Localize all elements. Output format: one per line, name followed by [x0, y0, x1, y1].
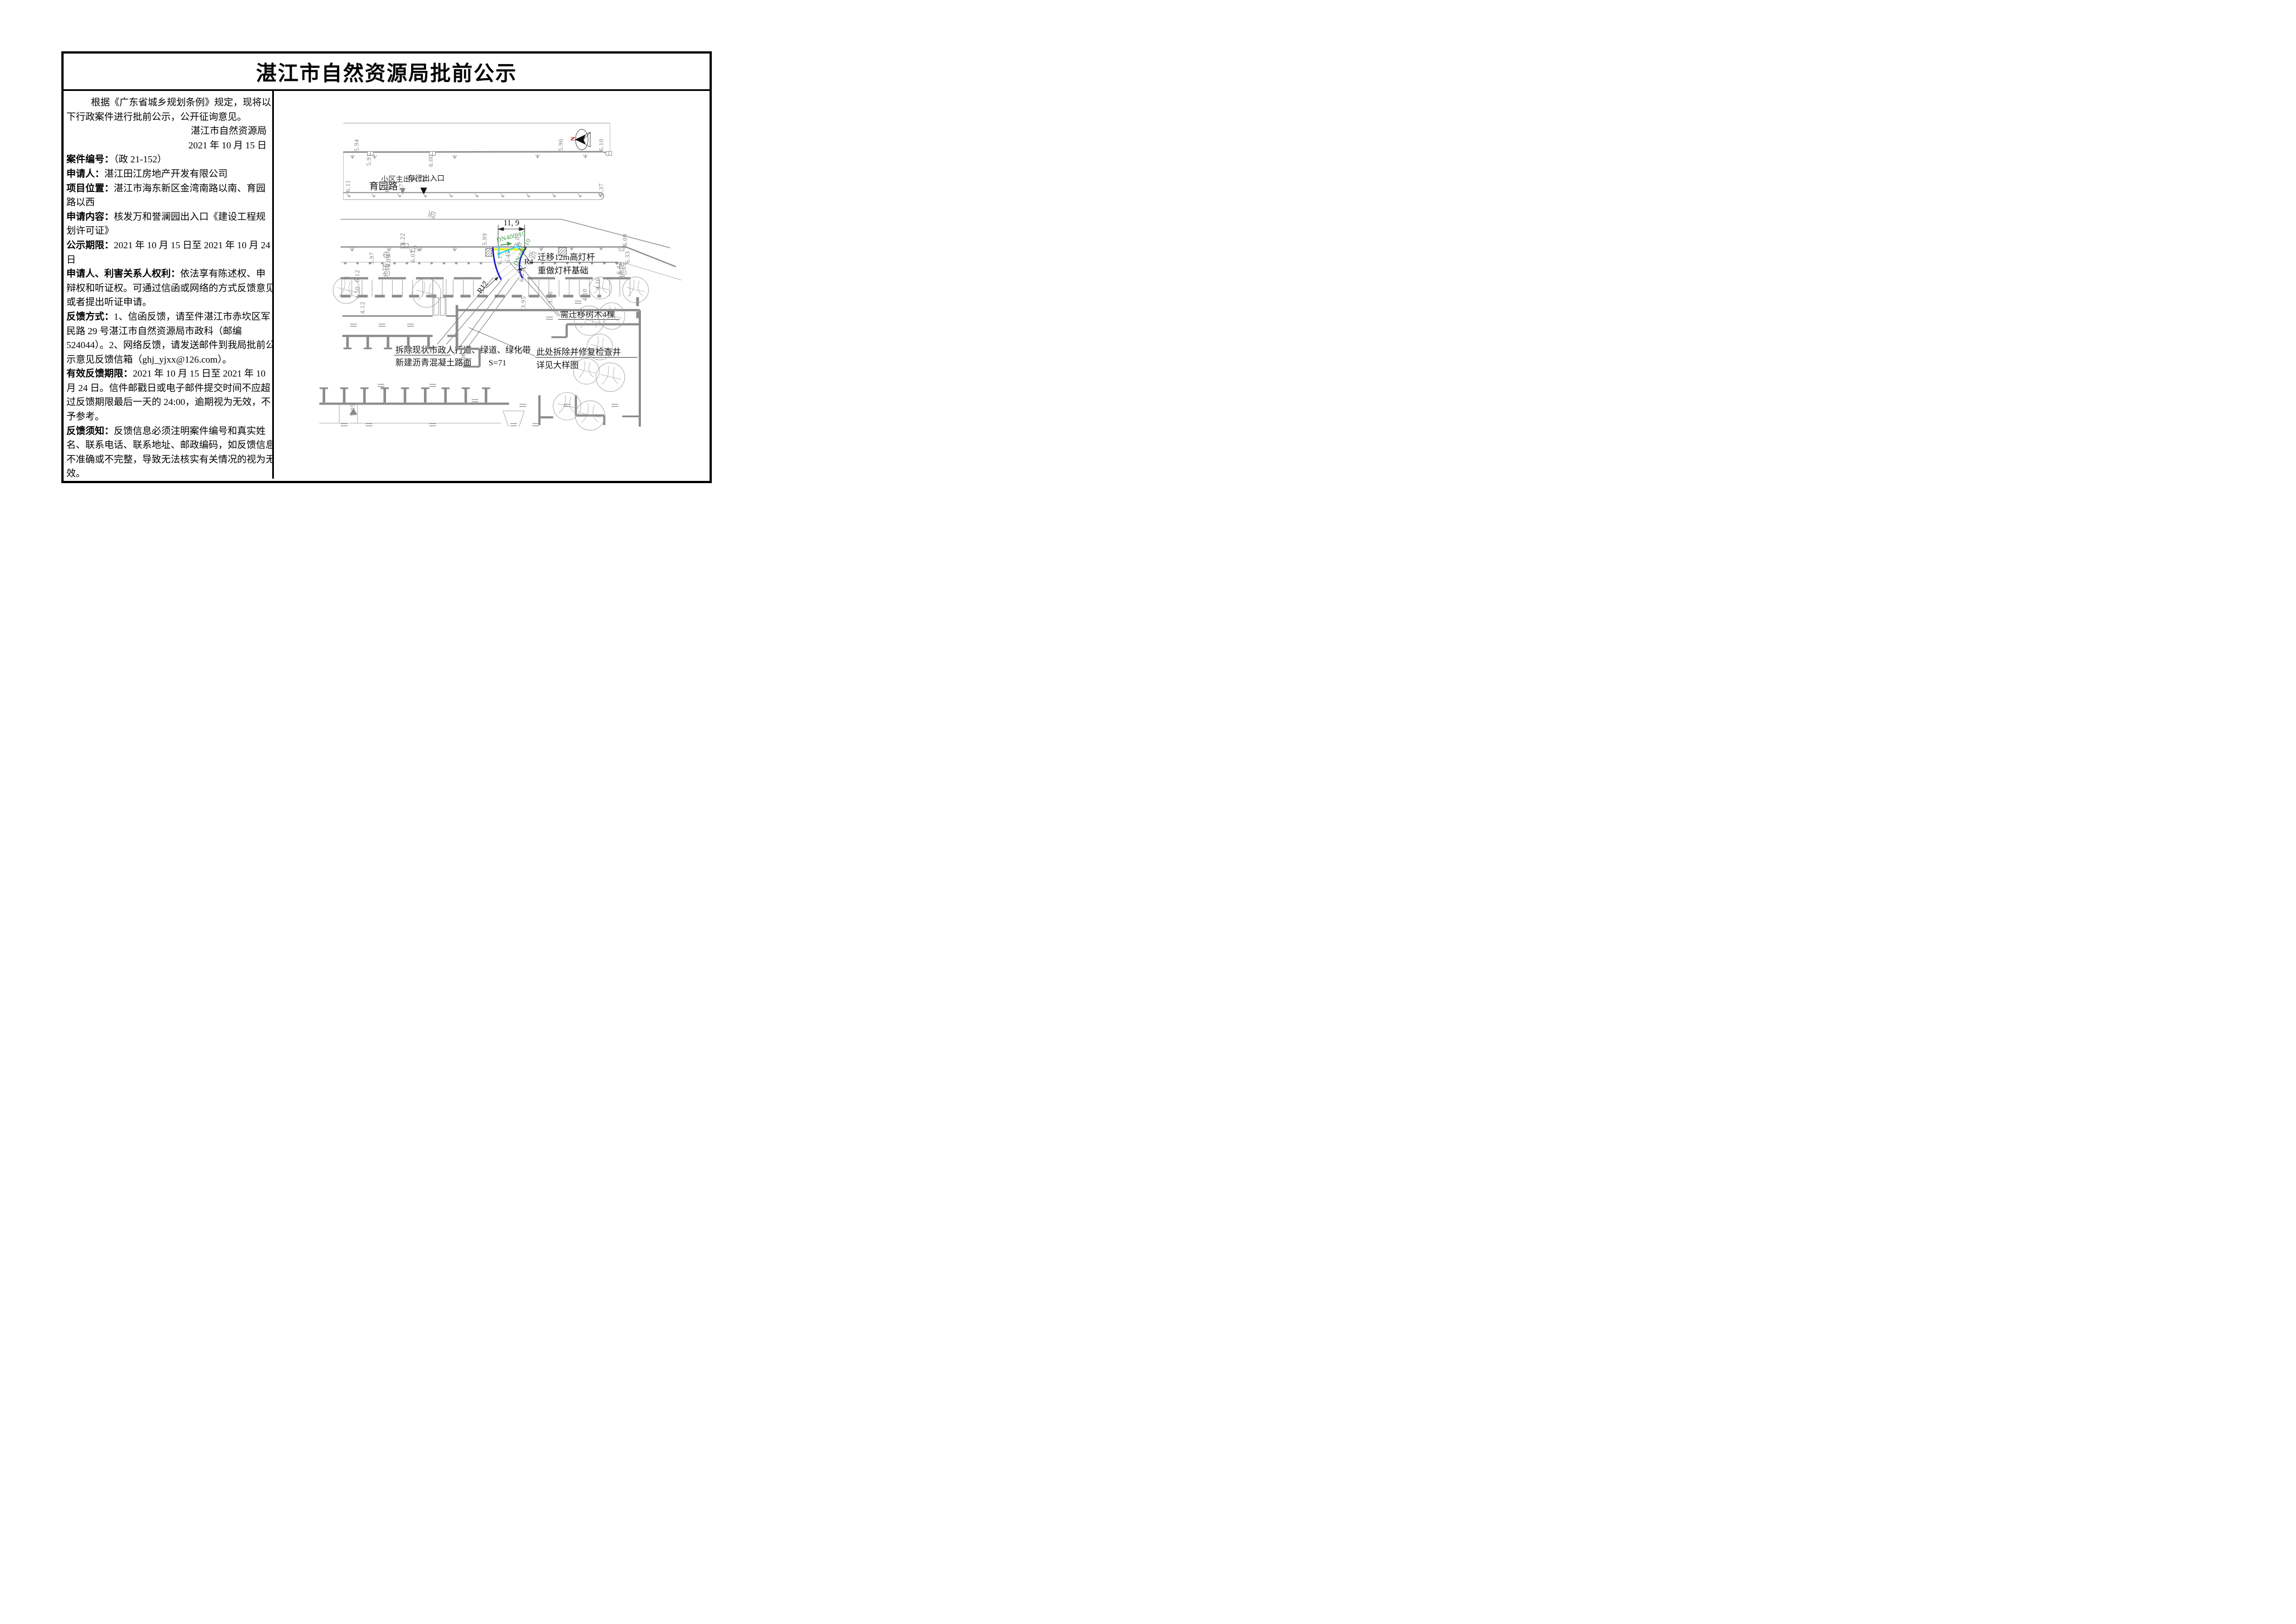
dimension-text: 11, 9 [504, 219, 520, 228]
north-compass-icon: N [570, 129, 590, 150]
well-annotation-line1: 此处拆除并修复检查井 [536, 348, 621, 357]
notice-line: 日 [66, 253, 269, 267]
notice-text-cell: 根据《广东省城乡规划条例》规定，现将以下行政案件进行批前公示，公开征询意见。湛江… [64, 91, 274, 479]
opening-icon [341, 423, 348, 426]
grass-icon [583, 154, 587, 158]
notice-line: 或者提出听证申请。 [66, 295, 269, 310]
elevation-label: 6.22 [399, 233, 406, 245]
elevation-label: 6.23 [519, 269, 525, 282]
notice-line: 公示期限：2021 年 10 月 15 日至 2021 年 10 月 24 [66, 238, 269, 253]
elevation-label: 6.37 [599, 183, 605, 195]
tree-icon [412, 278, 441, 307]
opening-icon [350, 324, 357, 326]
elevation-label: 5.99 [482, 233, 489, 245]
building-bottom-fragments [539, 395, 640, 425]
elevation-label: 5.05 [350, 404, 356, 416]
opening-icon [575, 301, 581, 303]
tree-icon [596, 363, 625, 392]
grass-icon [453, 155, 457, 158]
building-row-lower [319, 388, 509, 403]
site-gate [433, 279, 446, 316]
elevation-label: 5.91 [366, 153, 373, 166]
elevation-label: 6.09 [385, 255, 392, 267]
page-title: 湛江市自然资源局批前公示 [256, 56, 517, 86]
notice-line: 有效反馈期限：2021 年 10 月 15 日至 2021 年 10 [66, 367, 269, 381]
radius-r12-label: R12 [475, 279, 490, 295]
notice-line: 予参考。 [66, 409, 269, 424]
asphalt-char-top: 沥 [427, 210, 438, 220]
notice-line: 民路 29 号湛江市自然资源局市政科（邮编 [66, 324, 269, 339]
opening-icon [379, 324, 385, 326]
radius-r12-leader [486, 277, 498, 288]
lamp-annotation-line2: 重做灯杆基础 [538, 266, 589, 276]
opening-icon [378, 384, 384, 387]
elevation-label: 6.00 [428, 155, 435, 167]
notice-line: 路以西 [66, 195, 269, 210]
elevation-label: 6.09 [622, 234, 629, 246]
notice-line: 湛江市自然资源局 [66, 124, 269, 138]
notice-line: 不准确或不完整，导致无法核实有关情况的视为无 [66, 452, 269, 467]
elevation-label: 4.12 [359, 301, 366, 314]
opening-icon [546, 317, 553, 319]
elevation-label: 37 [398, 184, 405, 191]
grass-icon [453, 247, 457, 251]
grass-icon [350, 247, 354, 251]
elevation-label: 3.96 [547, 291, 554, 303]
elevation-label: 6.45 [505, 250, 512, 263]
opening-icon [407, 324, 414, 326]
opening-icon [519, 404, 526, 407]
grass-symbols [350, 154, 604, 251]
grass-icon [350, 155, 354, 158]
pipe-label-1: DN400-10 [495, 229, 526, 244]
notice-line: 名、联系电话、联系地址、邮政编码，如反馈信息 [66, 438, 269, 452]
elevation-label: 6.07 [410, 250, 417, 262]
opening-icon [430, 423, 436, 426]
grass-icon [536, 154, 539, 158]
notice-line: 案件编号：（政 21-152） [66, 152, 269, 167]
flow-arrow-icon [372, 194, 375, 197]
elevation-label: 6.42 [616, 262, 623, 274]
flow-arrow-icon [527, 194, 530, 197]
site-plan-drawing: 育园路 小区主出入口 车行出入口 N [276, 91, 707, 479]
well-annotation: 此处拆除并修复检查井 详见大样图 [535, 348, 637, 370]
elevation-label: 6.11 [345, 180, 351, 192]
title-row: 湛江市自然资源局批前公示 [64, 54, 710, 91]
notice-line: 月 24 日。信件邮戳日或电子邮件提交时间不应超 [66, 381, 269, 396]
newroad-annotation-text: 新建沥青混凝土路面 S=71 [395, 358, 507, 368]
notice-table: 湛江市自然资源局批前公示 根据《广东省城乡规划条例》规定，现将以下行政案件进行批… [61, 51, 712, 483]
trees-annotation: 需迁移树木4棵 [558, 310, 620, 319]
notice-line: 辩权和听证权。可通过信函或网络的方式反馈意见 [66, 281, 269, 296]
elevation-label: 4.10 [582, 288, 589, 301]
north-label: N [570, 137, 576, 141]
elevation-label: 5.96 [558, 139, 565, 151]
notice-line: 项目位置：湛江市海东新区金湾南路以南、育园 [66, 181, 269, 196]
flow-arrow-icon [501, 194, 504, 197]
opening-icon [472, 399, 479, 402]
notice-line: 划许可证》 [66, 224, 269, 238]
notice-line: 根据《广东省城乡规划条例》规定，现将以 [66, 95, 269, 110]
flow-arrow-icon [423, 194, 427, 197]
notice-line: 下行政案件进行批前公示，公开征询意见。 [66, 110, 269, 124]
lamp-annotation-line1: 迁移12m高灯杆 [538, 253, 595, 262]
opening-icon [430, 384, 436, 387]
road-flow-arrows [347, 194, 602, 197]
elevation-label: 6.17 [497, 252, 504, 264]
vehicle-entrance-triangle [420, 187, 427, 194]
flow-arrow-icon [398, 194, 401, 197]
elevation-label: 3.95 [520, 296, 527, 309]
opening-icon [510, 423, 517, 426]
tree-icon [623, 277, 648, 302]
notice-line: 效。 [66, 466, 269, 479]
notice-line: 示意见反馈信箱（ghj_yjxx@126.com）。 [66, 353, 269, 367]
flow-arrow-icon [552, 194, 556, 197]
notice-line: 申请内容：核发万和誉澜园出入口《建设工程规 [66, 210, 269, 224]
elevation-label: 6.03 [515, 233, 522, 245]
flow-arrow-icon [578, 194, 581, 197]
opening-icon [532, 423, 539, 426]
notice-sheet: 湛江市自然资源局批前公示 根据《广东省城乡规划条例》规定，现将以下行政案件进行批… [0, 0, 765, 541]
elevation-label: 6.33 [624, 251, 631, 263]
notice-line: 524044）。2、网络反馈，请发送邮件到我局批前公 [66, 338, 269, 353]
elevation-label: 6.17 [384, 180, 391, 192]
flow-arrow-icon [475, 194, 478, 197]
notice-paragraphs: 根据《广东省城乡规划条例》规定，现将以下行政案件进行批前公示，公开征询意见。湛江… [66, 95, 269, 479]
flow-arrow-icon [449, 194, 452, 197]
grass-icon [387, 247, 391, 251]
notice-line: 反馈须知：反馈信息必须注明案件编号和真实姓 [66, 424, 269, 438]
elevation-label: 6.10 [599, 139, 605, 151]
tree-icon [573, 358, 599, 384]
flow-arrow-icon [347, 194, 350, 197]
notice-line: 过反馈期限最后一天的 24:00，逾期视为无效，不 [66, 395, 269, 409]
notice-line: 申请人、利害关系人权利：依法享有陈述权、申 [66, 267, 269, 281]
radius-r4-label: R4 [524, 257, 533, 266]
notice-line: 反馈方式：1、信函反馈，请至件湛江市赤坎区军 [66, 310, 269, 324]
opening-icon [611, 404, 618, 407]
well-annotation-line2: 详见大样图 [536, 361, 578, 370]
notice-line: 申请人：湛江田江房地产开发有限公司 [66, 167, 269, 181]
opening-icon [366, 423, 373, 426]
elevation-label: 4.50 [354, 286, 361, 298]
vehicle-entrance-label: 车行出入口 [408, 174, 445, 182]
site-plan-cell: 育园路 小区主出入口 车行出入口 N [276, 91, 707, 479]
lamp-foundation-left [486, 248, 492, 257]
elevation-label: 5.97 [369, 252, 375, 264]
elevation-label: 5.94 [354, 139, 360, 151]
notice-line: 2021 年 10 月 15 日 [66, 138, 269, 153]
elevation-label: 5.06 [461, 353, 467, 365]
